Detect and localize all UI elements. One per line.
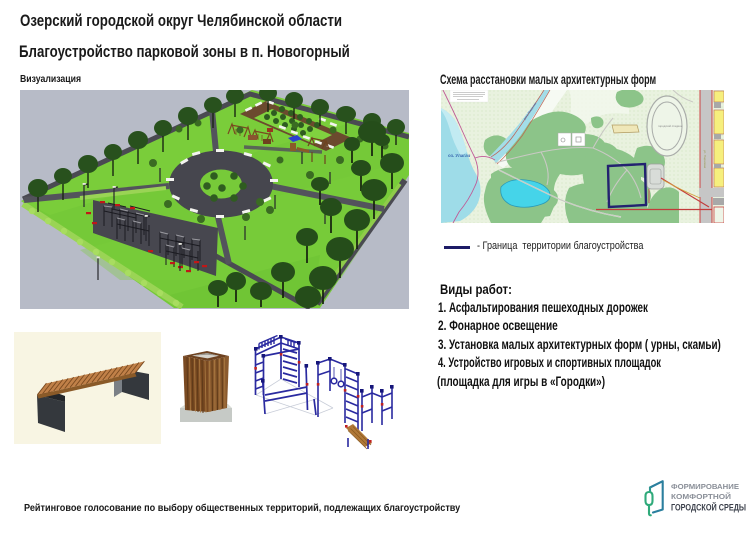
svg-text:оз. Улагач: оз. Улагач bbox=[448, 153, 471, 158]
svg-text:КОМФОРТНОЙ: КОМФОРТНОЙ bbox=[671, 492, 731, 501]
svg-text:городской стадион: городской стадион bbox=[658, 124, 683, 128]
svg-text:ул. Парковая: ул. Парковая bbox=[703, 150, 707, 169]
svg-text:ФОРМИРОВАНИЕ: ФОРМИРОВАНИЕ bbox=[671, 482, 739, 491]
svg-text:ГОРОДСКОЙ СРЕДЫ: ГОРОДСКОЙ СРЕДЫ bbox=[671, 502, 746, 513]
